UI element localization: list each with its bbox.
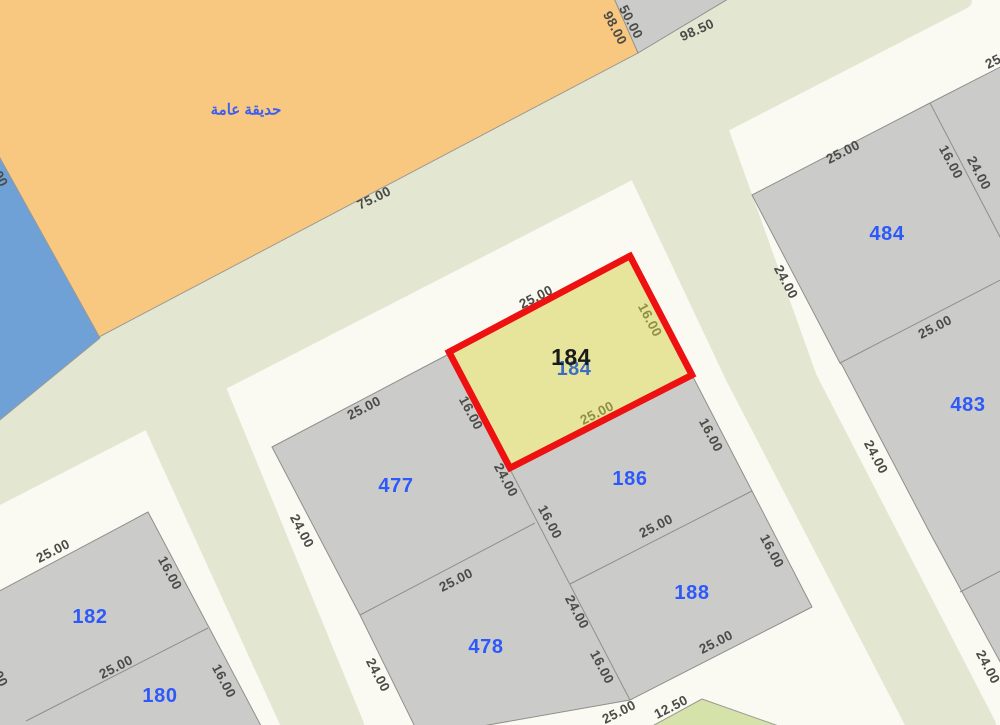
parcel-number-label: 484 bbox=[869, 223, 904, 245]
selected-parcel-number: 184 bbox=[551, 344, 591, 370]
dimension-label: 25.00 bbox=[983, 42, 1000, 72]
parcel-number-label: 186 bbox=[612, 468, 647, 490]
parcel-number-label: 478 bbox=[468, 636, 503, 658]
parcel-number-label: 477 bbox=[378, 475, 413, 497]
cadastral-map: 98.0050.0098.5075.0025.0016.0025.0016.00… bbox=[0, 0, 1000, 725]
parcel-number-label: 188 bbox=[674, 582, 709, 604]
parcel-number-label: 180 bbox=[142, 685, 177, 707]
public-garden-label: حديقة عامة bbox=[211, 102, 282, 119]
parcel-number-label: 182 bbox=[72, 606, 107, 628]
parcel-number-label: 483 bbox=[950, 394, 985, 416]
cadastral-map-viewport: 98.0050.0098.5075.0025.0016.0025.0016.00… bbox=[0, 0, 1000, 725]
